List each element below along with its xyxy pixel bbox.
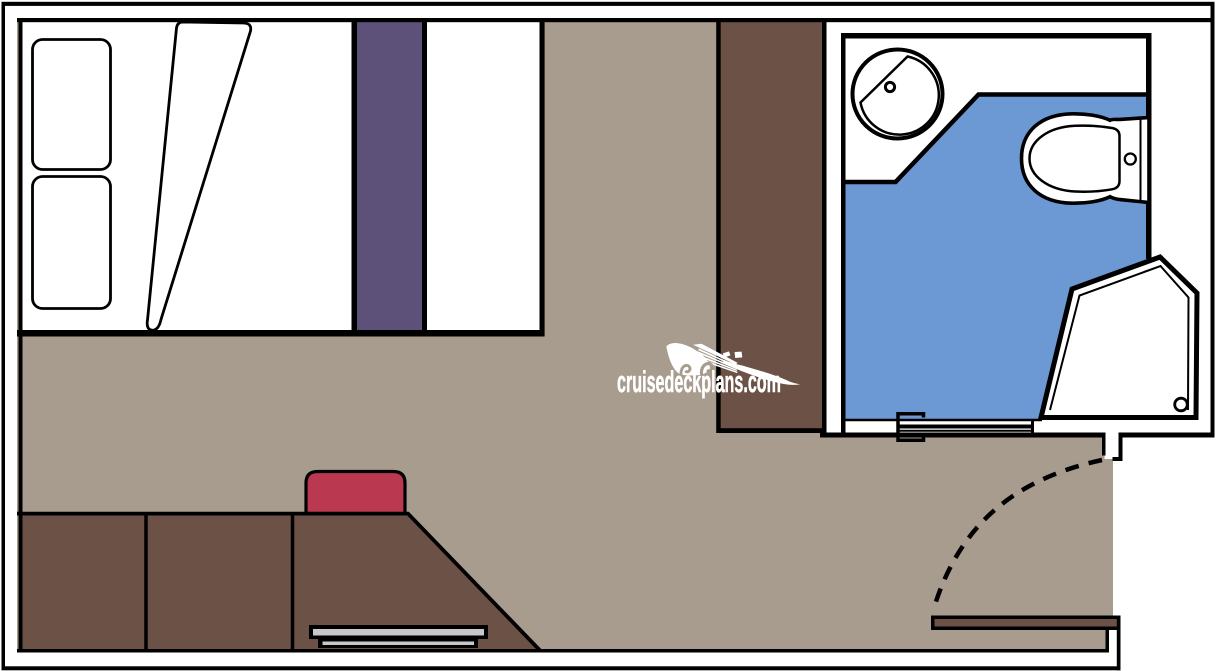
svg-text:cruisedeckplans.com: cruisedeckplans.com xyxy=(617,366,781,399)
